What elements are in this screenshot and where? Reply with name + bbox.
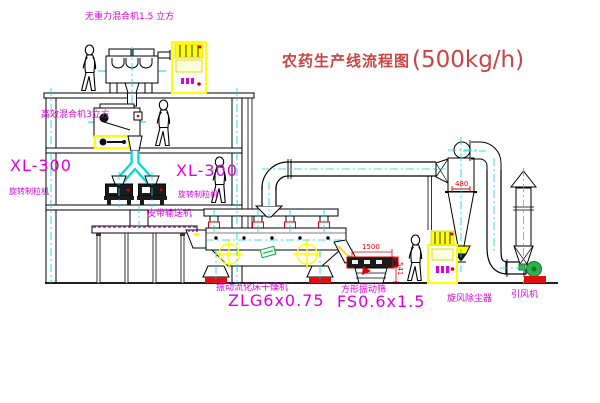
label-cyclone: 旋风除尘器 bbox=[447, 295, 492, 304]
worker-figure-floor2 bbox=[156, 100, 170, 146]
dryer-feed-hopper bbox=[186, 230, 206, 248]
label-gravity-mixer: 无重力混合机1.5 立方 bbox=[85, 13, 174, 22]
worker-figure-roof bbox=[82, 45, 96, 91]
square-vibrating-sieve bbox=[347, 249, 399, 283]
belt-conveyor bbox=[92, 226, 197, 283]
pesticide-line-flow-diagram: 农药生产线流程图 (500kg/h) 无重力混合机1.5 立方 高效混合机3立方… bbox=[0, 0, 600, 403]
title-text: 农药生产线流程图 bbox=[282, 50, 410, 71]
mixer-motor-box bbox=[95, 136, 129, 148]
gravity-free-mixer bbox=[98, 47, 170, 108]
label-sieve-model: FS0.6x1.5 bbox=[337, 294, 425, 310]
label-granulator-right-name: 旋转制粒机 bbox=[178, 191, 218, 199]
control-cabinet-right bbox=[428, 231, 457, 283]
label-granulator-right-model: XL-300 bbox=[176, 163, 238, 179]
label-fan: 引风机 bbox=[511, 291, 538, 300]
label-belt-conveyor: 皮带输送机 bbox=[147, 210, 192, 219]
label-dryer-model: ZLG6x0.75 bbox=[228, 293, 325, 309]
dim-sieve-height: 541 bbox=[396, 262, 403, 275]
fluid-bed-dryer bbox=[203, 206, 357, 283]
worker-figure-ground bbox=[408, 235, 422, 281]
title-capacity: (500kg/h) bbox=[412, 47, 524, 73]
label-mid-mixer: 高效混合机3立方 bbox=[41, 111, 110, 120]
label-granulator-left-name: 旋转制粒机 bbox=[9, 188, 49, 196]
control-cabinet-top bbox=[172, 42, 206, 93]
label-granulator-left-model: XL-300 bbox=[10, 158, 72, 174]
page-title: 农药生产线流程图 (500kg/h) bbox=[282, 47, 524, 73]
dim-cyclone-width: 480 bbox=[455, 181, 468, 188]
dim-sieve-length: 1500 bbox=[362, 244, 380, 251]
